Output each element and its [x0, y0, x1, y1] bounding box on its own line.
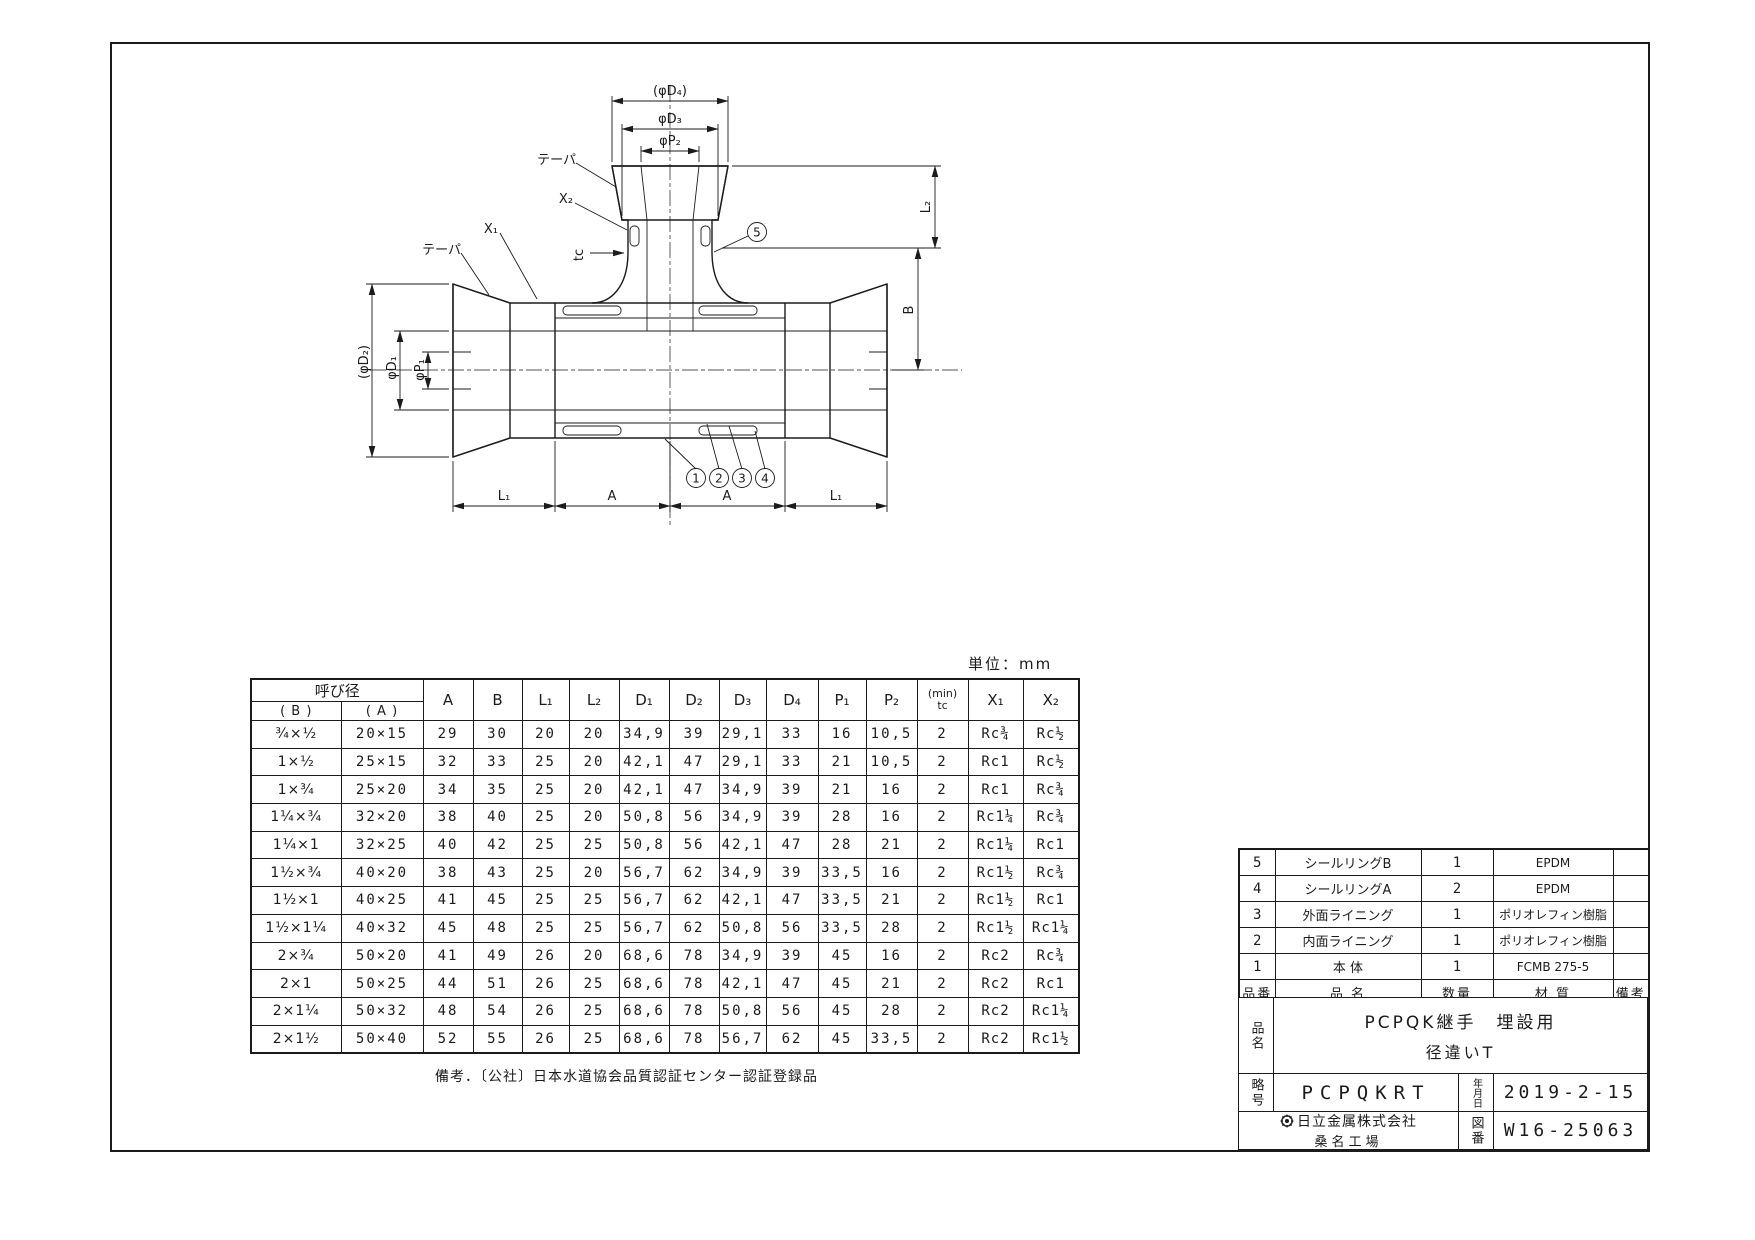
product-name-cell: PCPQK継手 埋設用 径違いT [1273, 997, 1648, 1074]
dimension-cell: 34,9 [719, 942, 766, 970]
date-label-cell: 年月日 [1458, 1073, 1494, 1112]
dimension-cell: 56,7 [619, 914, 669, 942]
dim-phi-d1: φD₁ [385, 356, 400, 380]
dimension-cell: 56 [766, 914, 818, 942]
dim-phi-p2: φP₂ [659, 134, 681, 149]
dimension-cell: 25 [522, 887, 569, 915]
dimension-cell: 47 [766, 970, 818, 998]
dimension-table-row: 1¼×¾32×203840252050,85634,93928162Rc1¼Rc… [251, 804, 1079, 832]
dimension-cell: 26 [522, 997, 569, 1025]
header-P1: P₁ [818, 679, 866, 721]
product-name-line2: 径違いT [1426, 1039, 1496, 1063]
balloon-4: 4 [761, 472, 769, 486]
date-label: 年月日 [1469, 1078, 1484, 1108]
dimension-cell: Rc1¼ [1023, 997, 1079, 1025]
dimension-cell: Rc1¼ [968, 804, 1023, 832]
center-lines [370, 86, 962, 527]
header-A: A [423, 679, 473, 721]
dim-l1-right: L₁ [830, 489, 842, 504]
header-X1: X₁ [968, 679, 1023, 721]
dimension-cell: 34,9 [619, 721, 669, 749]
dimension-cell: 28 [818, 804, 866, 832]
dimension-cell: 2×1¼ [251, 997, 341, 1025]
drawing-number-cell: W16-25063 [1493, 1111, 1648, 1150]
dimension-cell: Rc2 [968, 942, 1023, 970]
dimension-cell: Rc1½ [968, 887, 1023, 915]
parts-list-cell: EPDM [1493, 876, 1613, 902]
dimension-cell: Rc1 [968, 748, 1023, 776]
header-L2: L₂ [569, 679, 619, 721]
dimension-cell: 25 [569, 831, 619, 859]
dimension-cell: 33,5 [818, 914, 866, 942]
parts-list-cell: 2 [1421, 876, 1493, 902]
dim-phi-d2: (φD₂) [357, 345, 372, 379]
header-nominal-b: ( B ) [251, 702, 341, 721]
code-label-cell: 略号 [1238, 1073, 1274, 1112]
parts-list-row: 2内面ライニング1ポリオレフィン樹脂 [1239, 928, 1649, 954]
dimension-cell: 25 [522, 804, 569, 832]
dimension-cell: 40×25 [341, 887, 423, 915]
dimension-cell: 45 [473, 887, 522, 915]
dimension-cell: 39 [766, 942, 818, 970]
dimension-table-body: ¾×½20×152930202034,93929,1331610,52Rc¾Rc… [251, 721, 1079, 1053]
dimension-cell: 47 [669, 776, 719, 804]
dimension-cell: 25 [522, 831, 569, 859]
dimension-cell: Rc1¼ [968, 831, 1023, 859]
dimension-cell: 26 [522, 942, 569, 970]
dimension-cell: 56 [669, 831, 719, 859]
dimension-cell: 50×25 [341, 970, 423, 998]
dimension-table-row: 1½×140×254145252556,76242,14733,5212Rc1½… [251, 887, 1079, 915]
dimension-table-header: 呼び径 A B L₁ L₂ D₁ D₂ D₃ D₄ P₁ P₂ (min) tc… [251, 679, 1079, 721]
dimension-table-row: ¾×½20×152930202034,93929,1331610,52Rc¾Rc… [251, 721, 1079, 749]
dimension-cell: 26 [522, 970, 569, 998]
dimension-cell: 21 [818, 776, 866, 804]
dimension-cell: 28 [866, 914, 917, 942]
dimension-cell: 1½×¾ [251, 859, 341, 887]
dimension-cell: 39 [766, 804, 818, 832]
dimension-cell: 78 [669, 942, 719, 970]
dimension-cell: 2 [917, 804, 968, 832]
dimension-table-row: 1×¾25×203435252042,14734,93921162Rc1Rc¾ [251, 776, 1079, 804]
company-name: 日立金属株式会社 [1297, 1111, 1417, 1131]
label-x2: X₂ [559, 192, 573, 207]
dimension-cell: 32 [423, 748, 473, 776]
dimension-cell: 42 [473, 831, 522, 859]
dimension-cell: 34 [423, 776, 473, 804]
header-D2: D₂ [669, 679, 719, 721]
header-P2: P₂ [866, 679, 917, 721]
header-L1: L₁ [522, 679, 569, 721]
dim-phi-p1: φP₁ [413, 359, 428, 381]
dimension-cell: 50,8 [719, 997, 766, 1025]
dimension-cell: 34,9 [719, 804, 766, 832]
dimension-cell: 20 [569, 721, 619, 749]
dimension-cell: Rc1½ [968, 859, 1023, 887]
dimension-cell: 52 [423, 1025, 473, 1053]
dimension-cell: Rc½ [1023, 721, 1079, 749]
product-name-label-cell: 品名 [1238, 997, 1274, 1074]
parts-list-cell: 1 [1421, 954, 1493, 980]
hitachi-metals-logo-icon [1280, 1114, 1294, 1128]
dimension-cell: 50,8 [619, 804, 669, 832]
dimension-cell: 1¼×¾ [251, 804, 341, 832]
dimension-cell: 1¼×1 [251, 831, 341, 859]
header-D3: D₃ [719, 679, 766, 721]
dimension-cell: 42,1 [719, 831, 766, 859]
parts-list-row: 4シールリングA2EPDM [1239, 876, 1649, 902]
dimension-cell: 33,5 [818, 859, 866, 887]
dimension-cell: 10,5 [866, 721, 917, 749]
dimension-cell: 2×¾ [251, 942, 341, 970]
dimension-cell: 47 [669, 748, 719, 776]
product-name-line1: PCPQK継手 埋設用 [1365, 1008, 1557, 1033]
parts-list-cell: 1 [1421, 902, 1493, 928]
dimension-cell: Rc1 [968, 776, 1023, 804]
dimension-cell: 2 [917, 887, 968, 915]
dimension-cell: 33 [473, 748, 522, 776]
dimension-cell: 2 [917, 1025, 968, 1053]
dimension-cell: 16 [866, 776, 917, 804]
parts-list-cell: 2 [1239, 928, 1275, 954]
dimension-cell: 2 [917, 997, 968, 1025]
parts-list-row: 1本 体1FCMB 275-5 [1239, 954, 1649, 980]
dimension-cell: 38 [423, 804, 473, 832]
dimension-cell: 68,6 [619, 997, 669, 1025]
dimension-cell: 2×1 [251, 970, 341, 998]
dimension-cell: 2 [917, 831, 968, 859]
dimension-cell: 29 [423, 721, 473, 749]
dimension-cell: 2 [917, 776, 968, 804]
dimension-cell: 25 [569, 1025, 619, 1053]
dimension-cell: 28 [866, 997, 917, 1025]
parts-list-table: 5シールリングB1EPDM4シールリングA2EPDM3外面ライニング1ポリオレフ… [1238, 848, 1650, 1007]
dimension-cell: 42,1 [719, 887, 766, 915]
dimension-cell: 2 [917, 721, 968, 749]
dimension-cell: Rc¾ [968, 721, 1023, 749]
dimension-cell: 32×25 [341, 831, 423, 859]
dimension-cell: 50,8 [619, 831, 669, 859]
dimension-cell: 62 [766, 1025, 818, 1053]
dimension-cell: 1×½ [251, 748, 341, 776]
label-taper-top: テーパ [537, 153, 576, 168]
dimension-cell: 56 [669, 804, 719, 832]
dimension-cell: 68,6 [619, 970, 669, 998]
unit-label: 単位：mm [968, 653, 1052, 674]
dimension-cell: 45 [818, 942, 866, 970]
dimension-cell: 56,7 [619, 887, 669, 915]
dimension-cell: 41 [423, 887, 473, 915]
dimension-cell: 56 [766, 997, 818, 1025]
part-balloons: 1 2 3 4 5 [687, 223, 775, 488]
dimension-cell: 33 [766, 748, 818, 776]
dimension-cell: Rc¾ [1023, 804, 1079, 832]
dimension-cell: 1½×1¼ [251, 914, 341, 942]
drawing-number-label: 図番 [1467, 1116, 1486, 1146]
dim-l2: L₂ [919, 201, 934, 213]
dimension-cell: 1½×1 [251, 887, 341, 915]
dimension-cell: 25 [569, 914, 619, 942]
balloon-3: 3 [738, 472, 746, 486]
dimension-cell: 26 [522, 1025, 569, 1053]
dimension-cell: 2 [917, 748, 968, 776]
label-x1: X₁ [484, 222, 498, 237]
drawing-number-label-cell: 図番 [1458, 1111, 1494, 1150]
dimension-cell: 20 [569, 776, 619, 804]
dim-a-right: A [723, 489, 732, 504]
dimension-cell: 2 [917, 859, 968, 887]
header-D1: D₁ [619, 679, 669, 721]
dimension-cell: 2 [917, 942, 968, 970]
dimension-cell: 20 [569, 748, 619, 776]
dimension-cell: 42,1 [619, 748, 669, 776]
dimension-cell: 25×15 [341, 748, 423, 776]
dimension-cell: 41 [423, 942, 473, 970]
dimension-cell: 33,5 [818, 887, 866, 915]
parts-list-body: 5シールリングB1EPDM4シールリングA2EPDM3外面ライニング1ポリオレフ… [1239, 849, 1649, 1006]
header-tc-min-line2: tc [918, 700, 968, 712]
dimension-cell: 40 [423, 831, 473, 859]
dimension-cell: 56,7 [619, 859, 669, 887]
dimension-cell: 45 [423, 914, 473, 942]
company-cell: 日立金属株式会社 桑名工場 [1238, 1111, 1459, 1150]
dimension-cell: Rc2 [968, 1025, 1023, 1053]
dimension-cell: 42,1 [719, 970, 766, 998]
dimension-cell: 47 [766, 887, 818, 915]
dimension-table-row: 2×150×254451262568,67842,14745212Rc2Rc1 [251, 970, 1079, 998]
dimension-cell: 25 [569, 970, 619, 998]
parts-list-row: 5シールリングB1EPDM [1239, 849, 1649, 876]
dimension-cell: 29,1 [719, 721, 766, 749]
parts-list-cell: ポリオレフィン樹脂 [1493, 902, 1613, 928]
parts-list-cell: FCMB 275-5 [1493, 954, 1613, 980]
dimension-cell: 25 [522, 859, 569, 887]
header-nominal-size: 呼び径 [251, 679, 423, 702]
certification-note: 備考．〔公社〕日本水道協会品質認証センター認証登録品 [435, 1066, 818, 1086]
dimension-cell: Rc1½ [968, 914, 1023, 942]
dimension-cell: Rc1 [1023, 970, 1079, 998]
balloon-1: 1 [692, 472, 700, 486]
dimension-table-row: 1½×1¼40×324548252556,76250,85633,5282Rc1… [251, 914, 1079, 942]
balloon-5: 5 [753, 226, 761, 240]
parts-list-cell: 1 [1421, 928, 1493, 954]
dimension-cell: 50×32 [341, 997, 423, 1025]
parts-list-cell [1613, 902, 1649, 928]
parts-list-cell [1613, 928, 1649, 954]
dimension-cell: 29,1 [719, 748, 766, 776]
dimension-cell: Rc¾ [1023, 859, 1079, 887]
header-tc-min: (min) tc [917, 679, 968, 721]
parts-list-cell: EPDM [1493, 849, 1613, 876]
dimension-cell: 50,8 [719, 914, 766, 942]
dimension-cell: 16 [818, 721, 866, 749]
code-label: 略号 [1247, 1078, 1266, 1108]
dimension-cell: 33,5 [866, 1025, 917, 1053]
dimension-cell: 45 [818, 970, 866, 998]
dimension-cell: 34,9 [719, 776, 766, 804]
dimension-cell: 39 [669, 721, 719, 749]
dimension-cell: 62 [669, 914, 719, 942]
dimension-cell: Rc1 [1023, 831, 1079, 859]
parts-list-cell: シールリングA [1275, 876, 1421, 902]
dimension-cell: 78 [669, 970, 719, 998]
dimension-cell: 20 [569, 859, 619, 887]
parts-list-cell: ポリオレフィン樹脂 [1493, 928, 1613, 954]
dim-phi-d3: φD₃ [658, 112, 682, 127]
dimension-cell: 20 [569, 942, 619, 970]
dimension-cell: 21 [866, 970, 917, 998]
dimension-table-row: 2×¾50×204149262068,67834,93945162Rc2Rc¾ [251, 942, 1079, 970]
dimension-cell: Rc¾ [1023, 942, 1079, 970]
dimension-cell: 42,1 [619, 776, 669, 804]
dimension-cell: Rc1 [1023, 887, 1079, 915]
dimension-cell: 20 [569, 804, 619, 832]
dimension-table: 呼び径 A B L₁ L₂ D₁ D₂ D₃ D₄ P₁ P₂ (min) tc… [250, 678, 1080, 1054]
dimension-cell: 20 [522, 721, 569, 749]
dimension-table-row: 2×1¼50×324854262568,67850,85645282Rc2Rc1… [251, 997, 1079, 1025]
dimension-cell: 25 [522, 914, 569, 942]
dimension-cell: Rc2 [968, 997, 1023, 1025]
dimension-cell: 16 [866, 859, 917, 887]
dimension-cell: 21 [866, 831, 917, 859]
dimension-cell: 38 [423, 859, 473, 887]
dimension-cell: 30 [473, 721, 522, 749]
dimension-cell: 48 [473, 914, 522, 942]
dimension-cell: 54 [473, 997, 522, 1025]
dimension-cell: Rc1¼ [1023, 914, 1079, 942]
dimension-cell: 50×40 [341, 1025, 423, 1053]
dimension-cell: 32×20 [341, 804, 423, 832]
dimension-cell: 78 [669, 997, 719, 1025]
header-B: B [473, 679, 522, 721]
dimension-cell: 1×¾ [251, 776, 341, 804]
parts-list-cell: 内面ライニング [1275, 928, 1421, 954]
dimension-cell: 68,6 [619, 1025, 669, 1053]
dimension-cell: 40×32 [341, 914, 423, 942]
dimension-cell: 45 [818, 997, 866, 1025]
dimension-table-row: 1¼×132×254042252550,85642,14728212Rc1¼Rc… [251, 831, 1079, 859]
dimension-cell: 47 [766, 831, 818, 859]
dimension-cell: 33 [766, 721, 818, 749]
dimension-cell: Rc¾ [1023, 776, 1079, 804]
parts-list-cell [1613, 954, 1649, 980]
dimension-lines [366, 96, 941, 512]
drawing-sheet: (φD₄) φD₃ φP₂ (φD₂) φD₁ φP₁ L₂ B L₁ A A … [0, 0, 1755, 1240]
dimension-cell: 68,6 [619, 942, 669, 970]
parts-list-cell: シールリングB [1275, 849, 1421, 876]
dimension-table-row: 2×1½50×405255262568,67856,7624533,52Rc2R… [251, 1025, 1079, 1053]
parts-list-row: 3外面ライニング1ポリオレフィン樹脂 [1239, 902, 1649, 928]
header-nominal-a: ( A ) [341, 702, 423, 721]
dimension-cell: 50×20 [341, 942, 423, 970]
dimension-cell: 39 [766, 776, 818, 804]
dimension-cell: 20×15 [341, 721, 423, 749]
dimension-cell: 25 [522, 748, 569, 776]
parts-list-cell [1613, 849, 1649, 876]
dimension-cell: 51 [473, 970, 522, 998]
dimension-cell: 48 [423, 997, 473, 1025]
dim-phi-d4: (φD₄) [653, 84, 687, 99]
parts-list-cell: 4 [1239, 876, 1275, 902]
parts-list-cell: 1 [1239, 954, 1275, 980]
dimension-cell: 55 [473, 1025, 522, 1053]
dimension-cell: 34,9 [719, 859, 766, 887]
dimension-table-row: 1×½25×153233252042,14729,1332110,52Rc1Rc… [251, 748, 1079, 776]
balloon-2: 2 [715, 472, 723, 486]
factory-name: 桑名工場 [1314, 1131, 1382, 1150]
parts-list-cell: 外面ライニング [1275, 902, 1421, 928]
dimension-cell: 25 [522, 776, 569, 804]
dimension-cell: 44 [423, 970, 473, 998]
dimension-cell: 62 [669, 859, 719, 887]
dimension-cell: 2×1½ [251, 1025, 341, 1053]
dimension-cell: 45 [818, 1025, 866, 1053]
label-taper-left: テーパ [422, 243, 461, 258]
dimension-cell: 49 [473, 942, 522, 970]
code-value-cell: PCPQKRT [1273, 1073, 1459, 1112]
dimension-cell: 10,5 [866, 748, 917, 776]
dimension-cell: 2 [917, 970, 968, 998]
dimension-cell: 21 [818, 748, 866, 776]
header-X2: X₂ [1023, 679, 1079, 721]
dimension-cell: 40×20 [341, 859, 423, 887]
dimension-cell: 2 [917, 914, 968, 942]
dimension-cell: 16 [866, 942, 917, 970]
dimension-cell: 25×20 [341, 776, 423, 804]
header-D4: D₄ [766, 679, 818, 721]
dimension-cell: Rc2 [968, 970, 1023, 998]
dimension-cell: 43 [473, 859, 522, 887]
parts-list-cell: 5 [1239, 849, 1275, 876]
dimension-cell: 21 [866, 887, 917, 915]
parts-list-cell [1613, 876, 1649, 902]
product-name-label: 品名 [1247, 1021, 1266, 1051]
dimension-cell: 40 [473, 804, 522, 832]
parts-list-cell: 本 体 [1275, 954, 1421, 980]
dim-b: B [902, 306, 917, 315]
dimension-cell: 25 [569, 997, 619, 1025]
dimension-cell: Rc½ [1023, 748, 1079, 776]
parts-list-cell: 1 [1421, 849, 1493, 876]
dim-a-left: A [608, 489, 617, 504]
dimension-cell: 62 [669, 887, 719, 915]
dimension-table-row: 1½×¾40×203843252056,76234,93933,5162Rc1½… [251, 859, 1079, 887]
dimension-labels: (φD₄) φD₃ φP₂ (φD₂) φD₁ φP₁ L₂ B L₁ A A … [357, 84, 934, 504]
dimension-cell: 28 [818, 831, 866, 859]
label-tc: tc [572, 249, 587, 261]
dim-l1-left: L₁ [498, 489, 510, 504]
parts-list-cell: 3 [1239, 902, 1275, 928]
dimension-cell: 16 [866, 804, 917, 832]
dimension-cell: 39 [766, 859, 818, 887]
dimension-cell: 25 [569, 887, 619, 915]
dimension-cell: 78 [669, 1025, 719, 1053]
date-value-cell: 2019-2-15 [1493, 1073, 1648, 1112]
dimension-cell: Rc1½ [1023, 1025, 1079, 1053]
dimension-cell: 56,7 [719, 1025, 766, 1053]
dimension-cell: 35 [473, 776, 522, 804]
dimension-cell: ¾×½ [251, 721, 341, 749]
